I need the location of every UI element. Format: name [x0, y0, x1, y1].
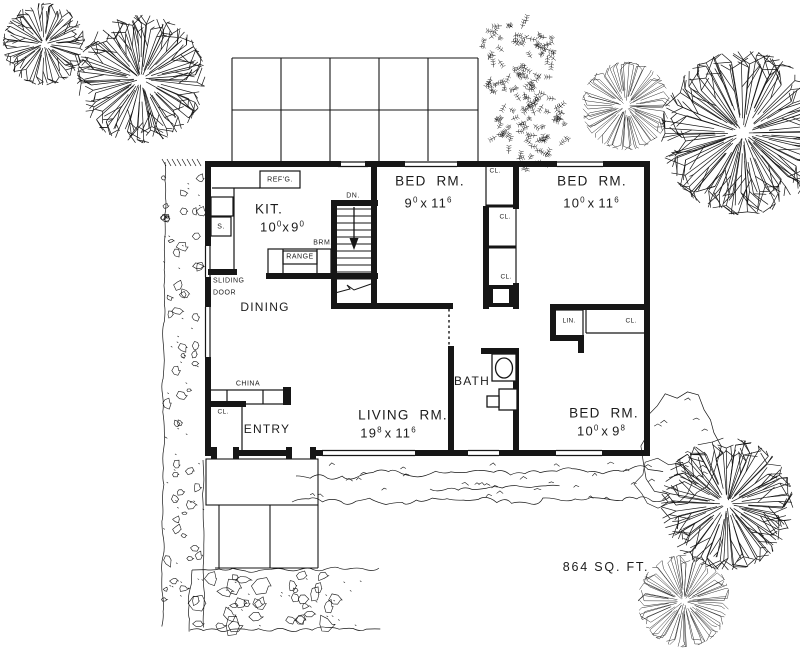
- china-cabinet-label: CHINA: [236, 381, 260, 388]
- bedroom1-dim: 90x116: [405, 195, 452, 210]
- entry-label: ENTRY: [244, 422, 290, 436]
- sliding-door-label-2: DOOR: [213, 290, 236, 297]
- entry-closet-label: CL.: [217, 409, 228, 416]
- closet-label-3: CL.: [500, 274, 511, 281]
- kitchen-label: KIT.: [255, 202, 283, 217]
- sink-label: S.: [217, 224, 225, 231]
- bedroom2-dim: 100x116: [563, 195, 618, 210]
- living-room-dim: 198x116: [360, 425, 415, 440]
- kitchen-dim: 100x90: [260, 219, 304, 234]
- bedroom1-label: BED RM.: [395, 174, 465, 189]
- closet-label-4: CL.: [625, 318, 636, 325]
- bath-label: BATH: [454, 374, 490, 388]
- plan-linework: [0, 0, 800, 657]
- living-room-label: LIVING RM.: [358, 408, 448, 423]
- closet-label-2: CL.: [499, 214, 510, 221]
- stairs-down-label: DN.: [346, 193, 360, 200]
- closet-label-1: CL.: [489, 168, 500, 175]
- range-label: RANGE: [286, 254, 313, 261]
- area-label: 864 SQ. FT.: [563, 560, 650, 574]
- bedroom2-label: BED RM.: [557, 174, 627, 189]
- bedroom3-dim: 100x98: [577, 423, 625, 438]
- sliding-door-label-1: SLIDING: [213, 278, 245, 285]
- broom-label: BRM.: [313, 240, 333, 247]
- dining-label: DINING: [240, 300, 289, 314]
- linen-closet-label: LIN.: [562, 318, 575, 325]
- floor-plan: REF'G. S. KIT. 100x90 DN. BRM. RANGE SLI…: [0, 0, 800, 657]
- tree-symbols: [3, 3, 800, 647]
- refrigerator-label: REF'G.: [267, 177, 293, 184]
- bedroom3-label: BED RM.: [569, 406, 639, 421]
